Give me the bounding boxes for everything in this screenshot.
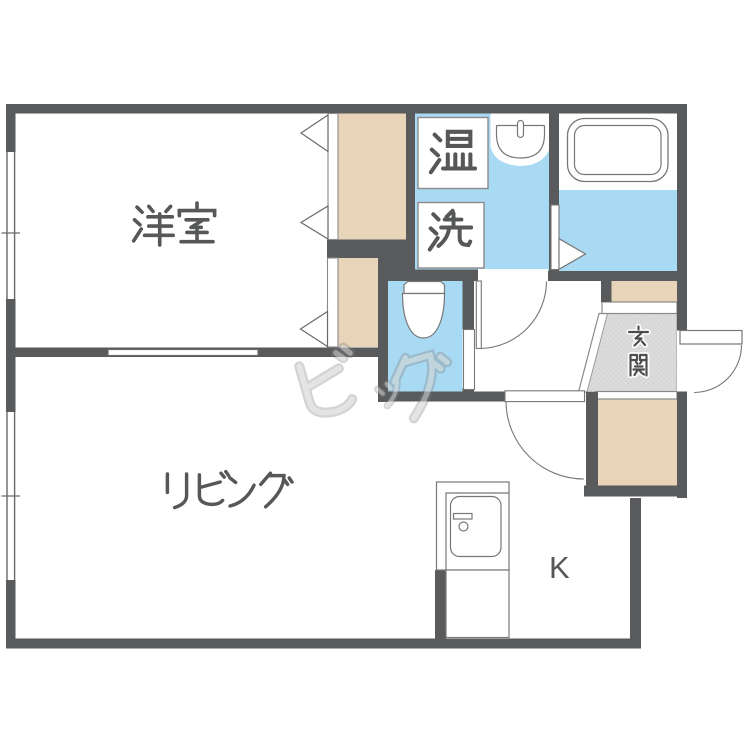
svg-text:K: K bbox=[549, 550, 570, 585]
